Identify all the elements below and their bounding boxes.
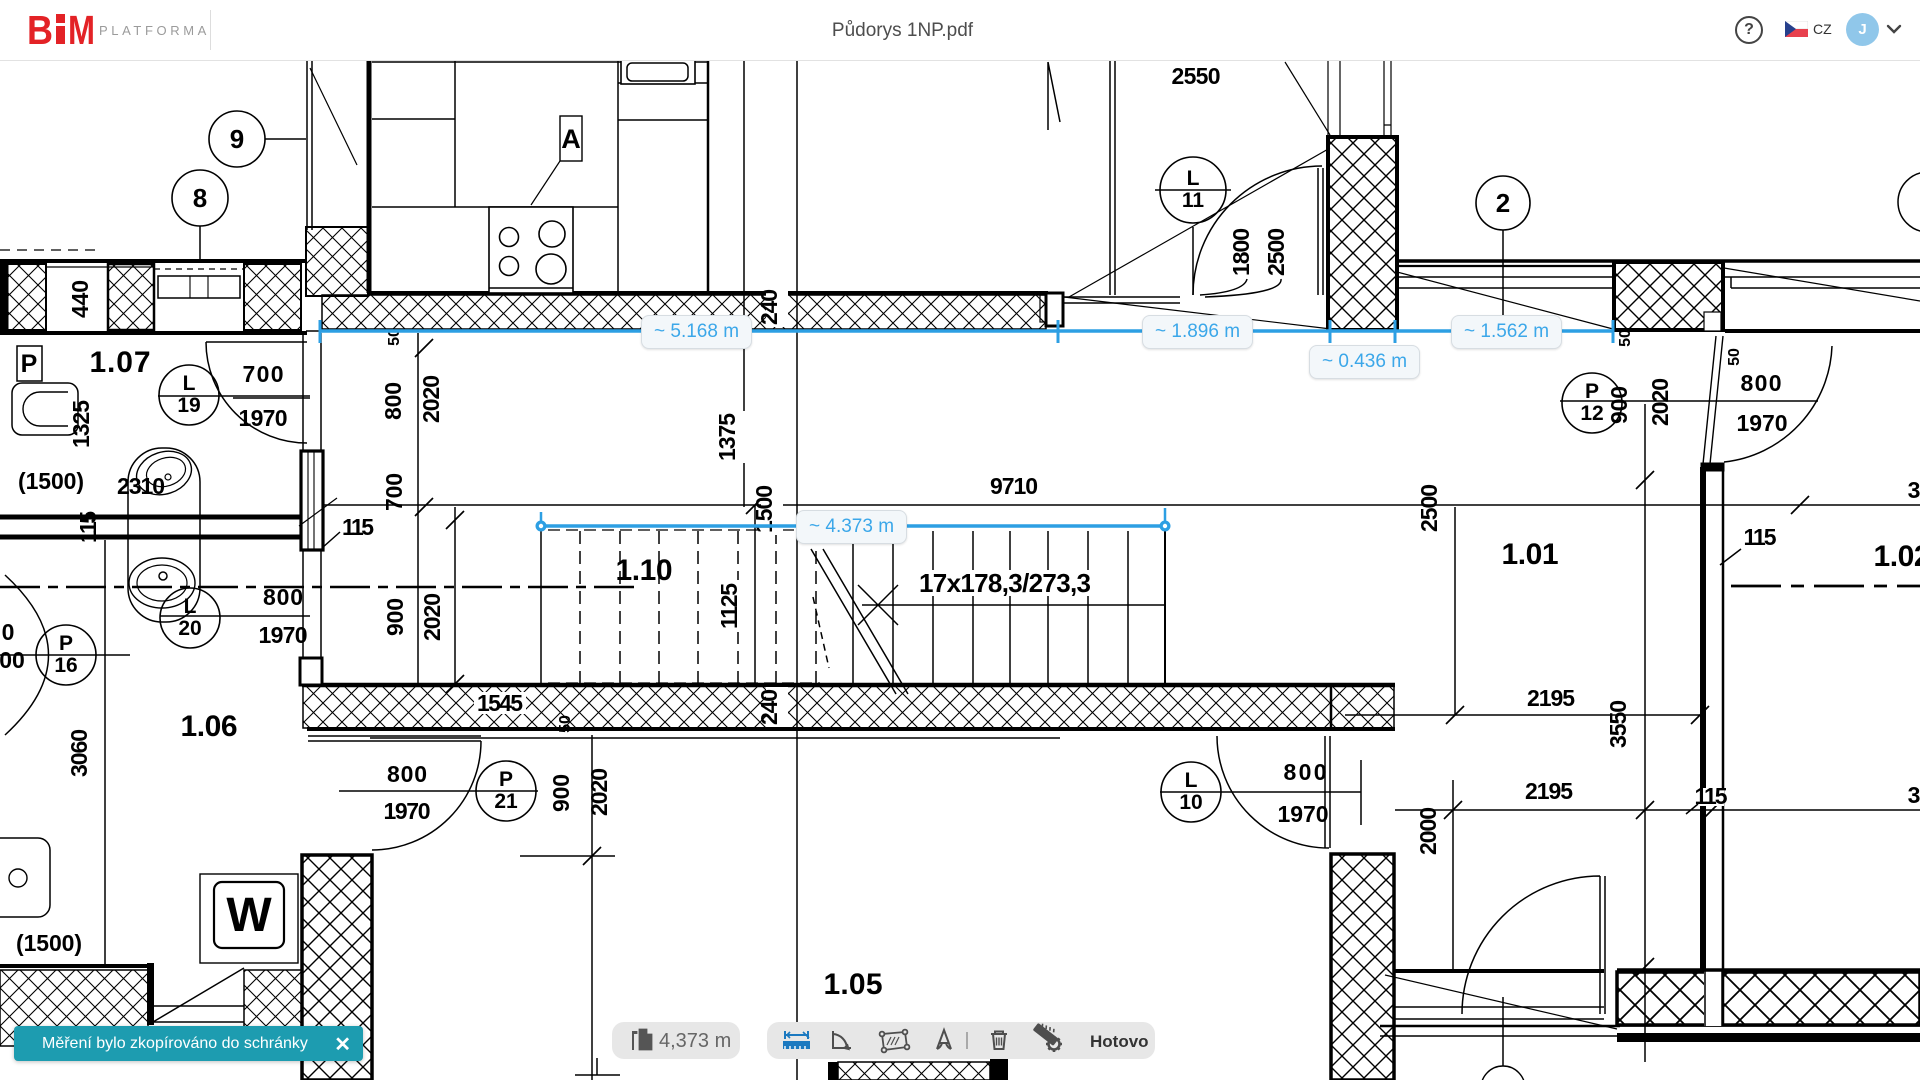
svg-text:P: P [59,632,73,655]
svg-text:L: L [183,372,196,395]
svg-text:L: L [184,595,197,618]
svg-text:2550: 2550 [1172,63,1221,89]
svg-text:8: 8 [193,183,207,213]
svg-text:115: 115 [75,511,101,543]
svg-text:50: 50 [1726,348,1743,366]
svg-text:1545: 1545 [477,690,523,716]
svg-text:240: 240 [756,689,782,725]
svg-text:2195: 2195 [1525,778,1573,804]
svg-text:(1500): (1500) [16,930,82,956]
svg-text:1.01: 1.01 [1502,538,1559,571]
svg-text:1970: 1970 [259,622,308,648]
svg-text:900: 900 [1606,386,1632,424]
svg-text:1970: 1970 [239,405,288,431]
svg-text:L: L [1187,167,1200,190]
svg-text:L: L [1185,769,1198,792]
svg-text:2500: 2500 [1263,228,1289,276]
svg-text:21: 21 [494,790,518,813]
svg-text:2195: 2195 [1527,685,1575,711]
svg-text:1.05: 1.05 [824,968,883,1001]
svg-text:0: 0 [2,619,15,645]
svg-text:2020: 2020 [1647,378,1673,426]
svg-text:50: 50 [1617,329,1634,347]
svg-text:9710: 9710 [990,473,1038,499]
svg-text:800: 800 [387,761,427,787]
svg-text:800: 800 [263,584,303,610]
svg-text:1970: 1970 [384,798,431,824]
svg-text:900: 900 [382,598,408,636]
svg-text:1325: 1325 [68,400,94,448]
svg-text:2020: 2020 [586,768,612,816]
svg-text:11: 11 [1182,189,1205,212]
svg-text:3550: 3550 [1605,700,1631,748]
svg-text:1.10: 1.10 [616,554,673,587]
svg-text:2310: 2310 [117,473,165,499]
svg-text:W: W [226,889,272,942]
svg-text:115: 115 [1744,524,1777,550]
svg-text:12: 12 [1580,402,1603,425]
svg-text:240: 240 [756,289,782,325]
svg-text:(1500): (1500) [18,468,84,494]
svg-text:P: P [21,350,38,378]
svg-text:P: P [499,768,513,791]
svg-text:700: 700 [243,361,284,387]
svg-text:50: 50 [557,715,574,733]
svg-text:1.07: 1.07 [90,346,151,379]
svg-text:3060: 3060 [66,729,92,777]
svg-text:10: 10 [1179,791,1202,814]
svg-text:9: 9 [230,124,244,154]
svg-text:700: 700 [381,473,407,511]
svg-text:19: 19 [177,394,200,417]
svg-text:17x178,3/273,3: 17x178,3/273,3 [919,568,1091,598]
svg-text:A: A [561,124,581,154]
svg-text:2020: 2020 [418,375,444,423]
svg-text:3: 3 [1908,782,1920,808]
svg-text:800: 800 [1284,759,1327,785]
svg-text:440: 440 [67,280,93,318]
svg-text:2: 2 [1496,188,1510,218]
svg-text:1970: 1970 [1737,410,1788,436]
svg-text:P: P [1585,380,1599,403]
svg-text:900: 900 [548,774,574,812]
svg-text:2020: 2020 [419,593,445,641]
svg-text:1.02: 1.02 [1874,540,1920,573]
svg-text:00: 00 [0,647,25,673]
svg-text:800: 800 [380,382,406,420]
svg-text:1800: 1800 [1228,228,1254,276]
svg-text:1970: 1970 [1278,801,1329,827]
svg-text:800: 800 [1741,370,1782,396]
svg-text:115: 115 [342,514,374,540]
svg-text:2000: 2000 [1415,807,1441,855]
svg-text:20: 20 [178,617,201,640]
svg-text:16: 16 [54,654,77,677]
svg-text:1375: 1375 [714,413,740,461]
svg-text:1125: 1125 [716,583,742,629]
svg-text:1.06: 1.06 [181,710,238,743]
svg-text:3: 3 [1908,477,1920,503]
svg-text:2500: 2500 [1416,484,1442,532]
svg-text:115: 115 [1695,783,1728,809]
